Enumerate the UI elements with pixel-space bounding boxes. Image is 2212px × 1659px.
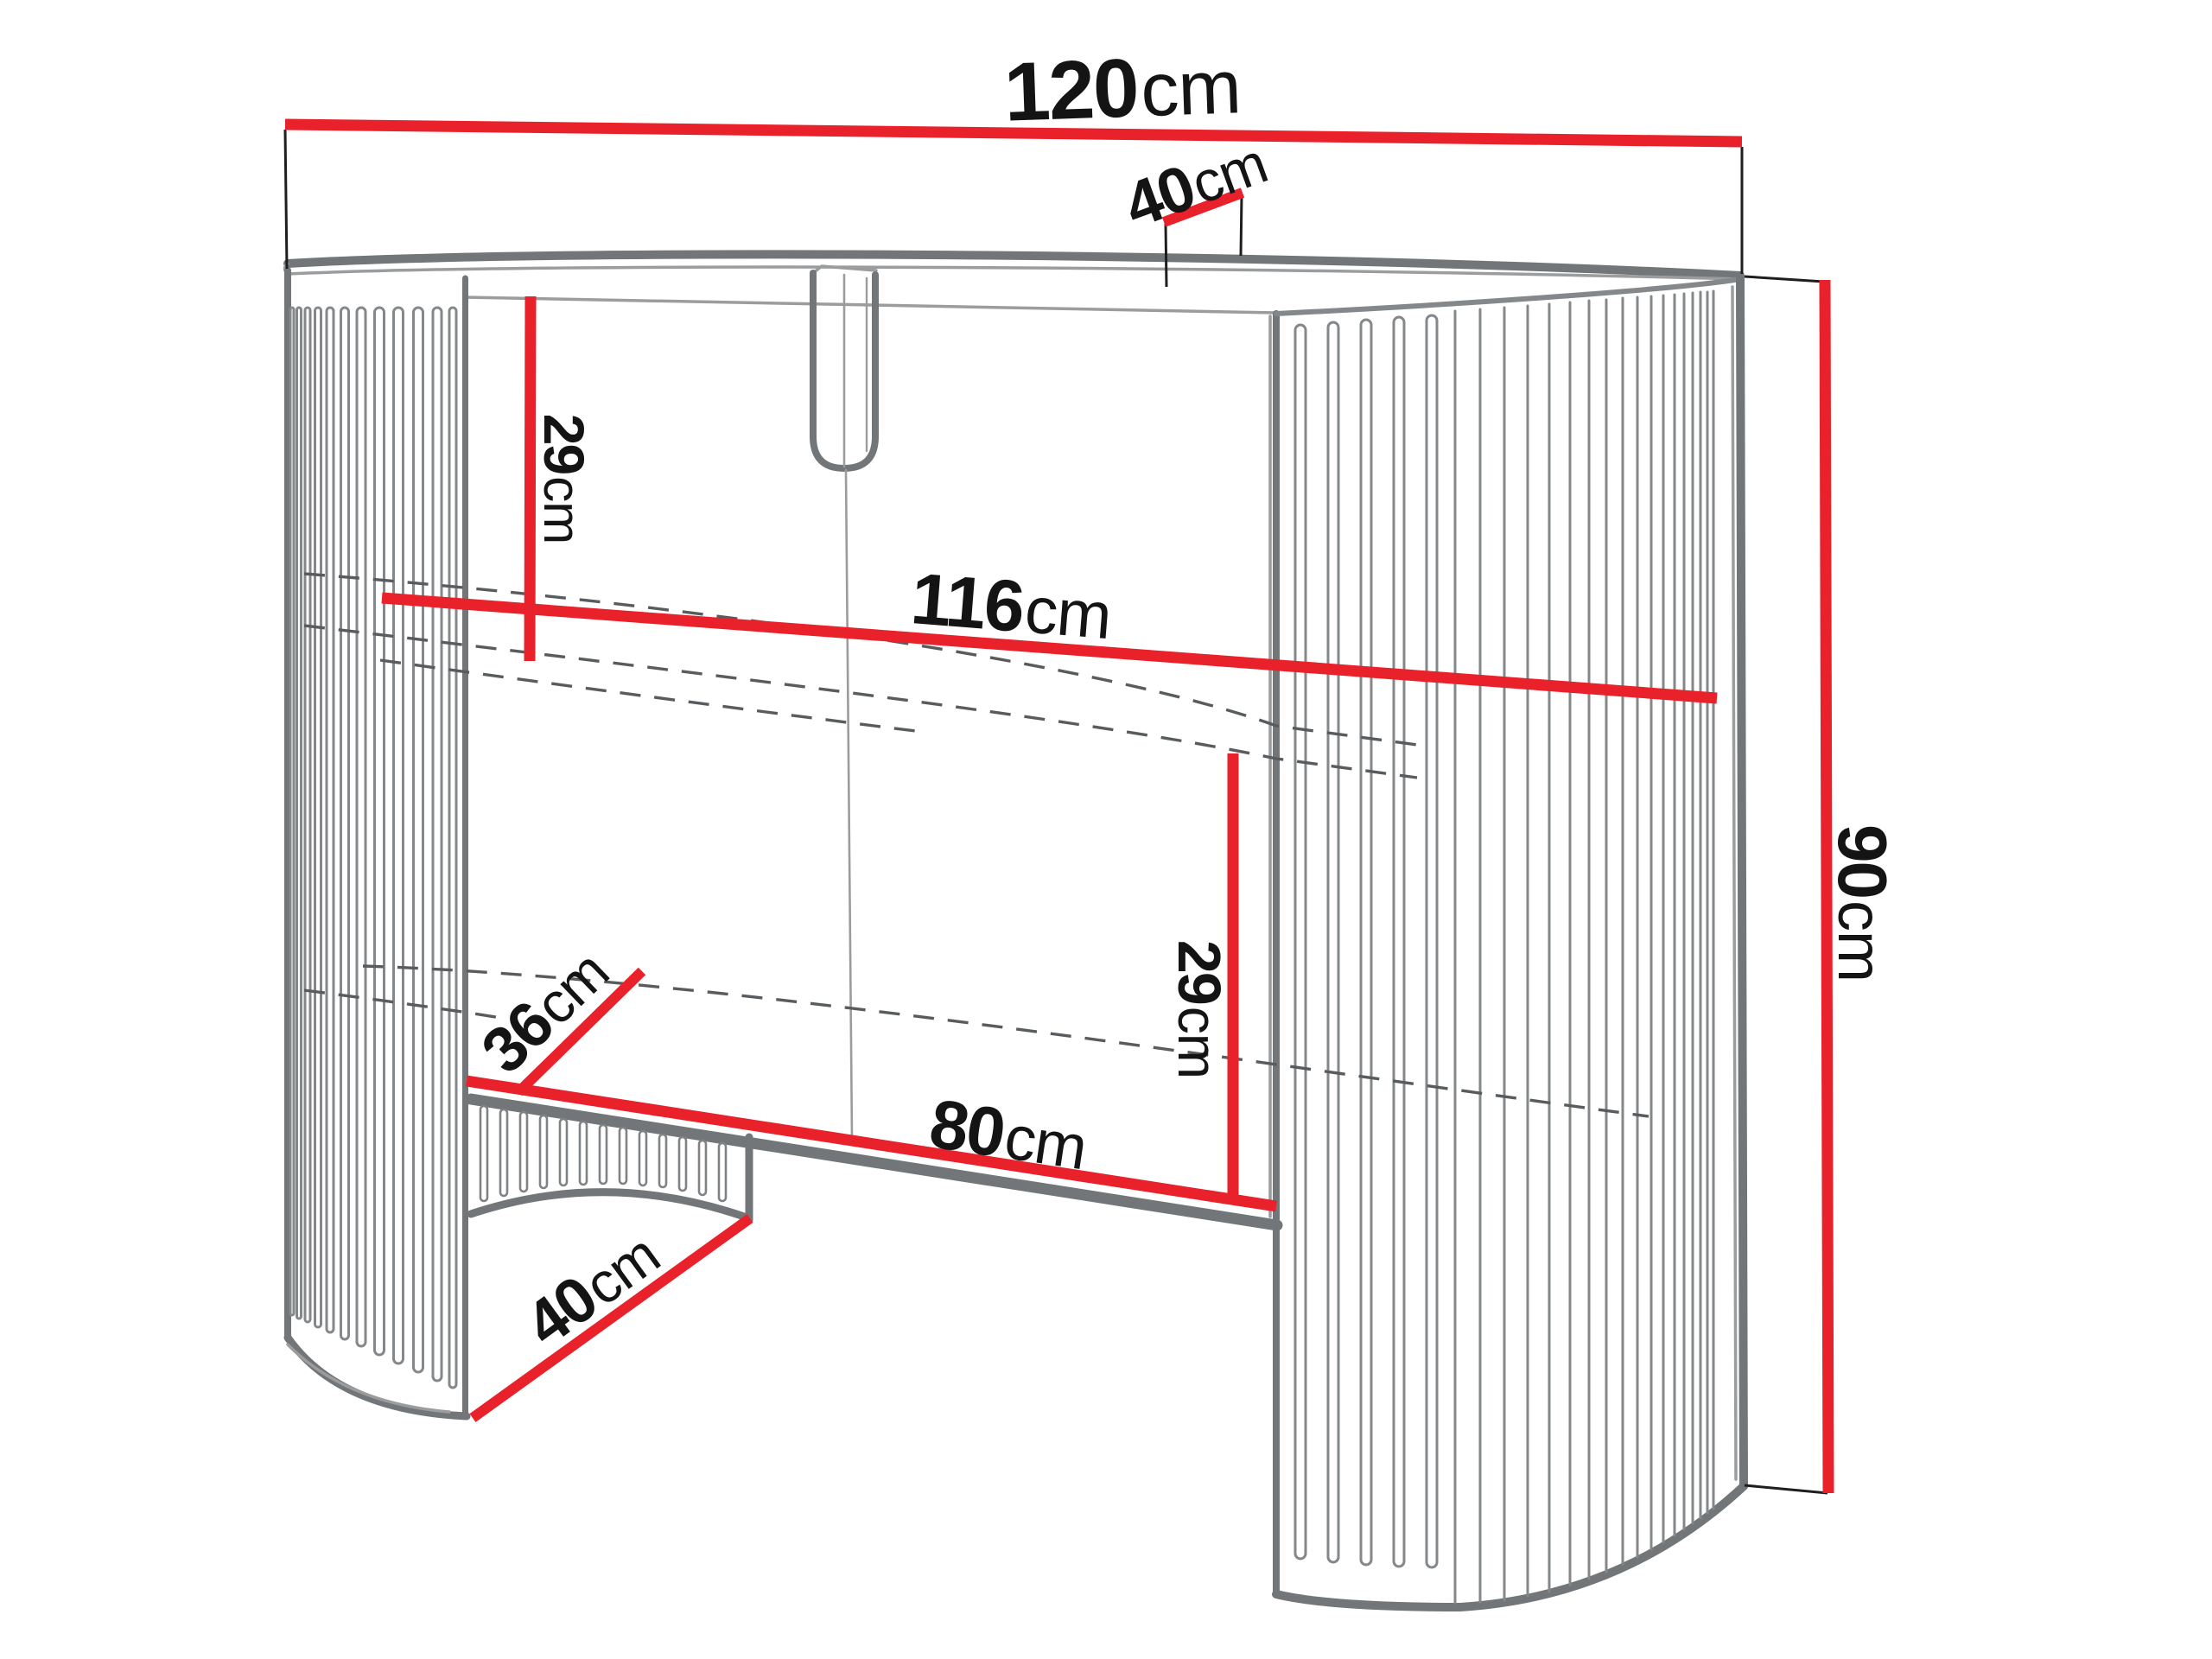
flute-groove xyxy=(315,308,321,1327)
flute-groove xyxy=(297,308,302,1319)
diagram-stage: 120cm 40cm 29cm 116cm 90cm 36cm 29cm 80c… xyxy=(0,0,2212,1659)
foot-groove xyxy=(520,1112,527,1192)
label-upper-clearance: 29cm xyxy=(532,414,596,543)
flute-groove xyxy=(341,308,349,1339)
foot-groove xyxy=(540,1116,547,1188)
left-column-flutes xyxy=(290,308,456,1388)
right-column-flutes xyxy=(1295,315,1437,1567)
top-panel xyxy=(285,254,1741,313)
flute-groove xyxy=(1427,315,1437,1567)
right-column-top-edge xyxy=(1276,279,1739,314)
top-panel-underside-edge xyxy=(465,297,1276,313)
dim-line-opening-width-80 xyxy=(467,1081,1276,1206)
label-top-depth: 40cm xyxy=(1115,124,1275,241)
foot-groove xyxy=(580,1122,587,1185)
extension-line xyxy=(1241,195,1242,256)
bottom-band-edge xyxy=(471,1099,1277,1225)
top-panel-back-edge xyxy=(288,254,1740,276)
handle xyxy=(813,266,876,1139)
furniture-dimension-diagram: 120cm 40cm 29cm 116cm 90cm 36cm 29cm 80c… xyxy=(0,0,2212,1659)
flute-groove xyxy=(414,308,423,1372)
left-column-bottom-curve xyxy=(288,1338,467,1416)
foot-groove xyxy=(639,1131,646,1185)
foot-groove xyxy=(500,1109,507,1196)
flute-groove xyxy=(1394,317,1404,1567)
foot-arch xyxy=(471,1192,749,1218)
flute-groove xyxy=(1328,322,1338,1562)
shelf-front-edge-dashed xyxy=(304,626,1417,778)
flute-groove xyxy=(1295,325,1306,1559)
furniture-drawing xyxy=(285,254,1745,1607)
foot-groove xyxy=(719,1143,726,1201)
flute-groove xyxy=(449,308,456,1388)
flute-groove xyxy=(433,308,442,1381)
extension-line xyxy=(1166,224,1166,287)
foot-groove xyxy=(659,1135,666,1187)
extension-lines xyxy=(285,130,1827,1493)
flute-groove xyxy=(290,308,294,1315)
flute-groove xyxy=(375,308,385,1355)
dimension-lines xyxy=(285,124,1828,1493)
label-inner-width: 116cm xyxy=(908,557,1114,654)
back-panel-centre-seam xyxy=(846,470,852,1139)
flute-groove xyxy=(394,308,404,1363)
foot-groove xyxy=(560,1119,567,1185)
foot-groove xyxy=(679,1137,686,1191)
flute-groove xyxy=(305,308,310,1322)
label-height: 90cm xyxy=(1824,824,1901,982)
foot-groove xyxy=(600,1125,607,1184)
label-lower-clearance: 29cm xyxy=(1166,940,1233,1078)
flute-groove xyxy=(1361,320,1371,1565)
flute-groove xyxy=(357,308,365,1346)
right-column xyxy=(1276,277,1744,1607)
right-column-flutes-curved-side xyxy=(1455,291,1713,1603)
left-column xyxy=(288,270,467,1416)
foot-groove xyxy=(480,1106,487,1201)
right-column-right-edge xyxy=(1740,277,1744,1486)
extension-line xyxy=(1745,276,1824,282)
label-top-width: 120cm xyxy=(1002,38,1242,138)
extension-line xyxy=(1745,1485,1827,1493)
label-base-depth: 40cm xyxy=(512,1217,671,1360)
flute-groove xyxy=(327,308,334,1332)
extension-line xyxy=(285,130,287,269)
shelf-thickness-dashed xyxy=(380,660,916,731)
foot-groove xyxy=(620,1128,626,1184)
foot-groove xyxy=(699,1141,706,1195)
right-column-right-inner-edge xyxy=(1732,287,1736,1479)
